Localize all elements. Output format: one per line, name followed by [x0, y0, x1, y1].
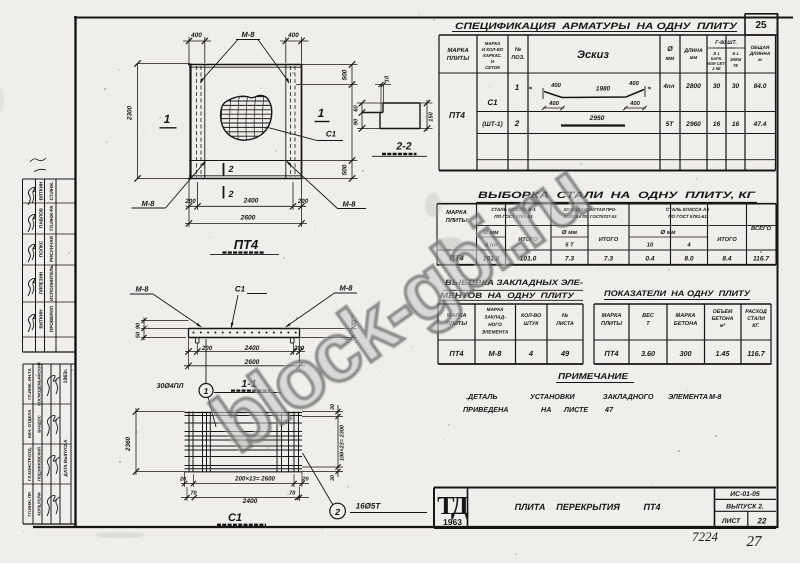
svg-text:4: 4	[528, 349, 534, 358]
svg-text:НА: НА	[541, 405, 551, 414]
svg-text:мм: мм	[690, 55, 698, 61]
svg-text:20: 20	[179, 477, 187, 483]
svg-text:2360: 2360	[125, 436, 132, 452]
svg-text:4: 4	[686, 243, 691, 249]
svg-text:ОБЪЕМ: ОБЪЕМ	[713, 309, 733, 315]
svg-text:2400: 2400	[242, 498, 258, 505]
svg-text:2: 2	[227, 189, 233, 199]
svg-text:ПОЗ.: ПОЗ.	[511, 55, 525, 61]
svg-text:ПЕРЕКРЫТИЯ: ПЕРЕКРЫТИЯ	[556, 502, 620, 512]
svg-text:8.0: 8.0	[684, 256, 693, 263]
svg-text:ТЕ: ТЕ	[733, 63, 738, 68]
svg-text:2960: 2960	[685, 121, 701, 128]
svg-text:ИТОГО: ИТОГО	[717, 237, 737, 243]
svg-text:ПТ4: ПТ4	[234, 237, 259, 252]
svg-text:СТАЛИ: СТАЛИ	[747, 316, 765, 322]
svg-text:22: 22	[757, 517, 767, 526]
svg-text:ПТ4: ПТ4	[449, 349, 464, 358]
svg-text:7.3: 7.3	[565, 256, 574, 263]
svg-text:1980: 1980	[596, 86, 611, 93]
svg-text:ШТУК: ШТУК	[524, 321, 540, 327]
svg-text:8: 8	[528, 86, 533, 89]
svg-text:7.3: 7.3	[604, 256, 613, 263]
svg-text:2800: 2800	[685, 83, 701, 90]
svg-text:№: №	[515, 47, 522, 53]
svg-text:90: 90	[353, 118, 360, 125]
svg-text:МАРКА: МАРКА	[676, 313, 696, 319]
svg-text:2: 2	[514, 119, 520, 128]
svg-text:ГЛ.КОНСТР.ОТД.: ГЛ.КОНСТР.ОТД.	[27, 447, 32, 481]
svg-text:ГЛ.ИНЖ-РА: ГЛ.ИНЖ-РА	[49, 205, 54, 231]
svg-text:30: 30	[713, 83, 721, 90]
svg-text:м: м	[758, 58, 762, 63]
svg-text:400: 400	[548, 100, 559, 107]
svg-text:ДАТА ВЫПУСКА: ДАТА ВЫПУСКА	[63, 439, 68, 477]
svg-text:2950: 2950	[589, 115, 605, 122]
svg-text:ДЛИНА: ДЛИНА	[683, 48, 703, 54]
svg-text:116.7: 116.7	[747, 349, 765, 358]
svg-text:ПТ4: ПТ4	[604, 349, 619, 358]
svg-text:СТАЛЬ КЛАССА А-I: СТАЛЬ КЛАССА А-I	[666, 207, 710, 212]
svg-text:500: 500	[342, 164, 349, 175]
svg-text:СПЕЦИФИКАЦИЯ АРМАТУРЫ НА ОДН: СПЕЦИФИКАЦИЯ АРМАТУРЫ НА ОДНУ ПЛИТУ	[455, 21, 738, 31]
svg-text:ЭЛЕМ: ЭЛЕМ	[730, 57, 742, 62]
svg-text:ДЛИННА: ДЛИННА	[749, 51, 771, 57]
svg-text:Т: Т	[646, 321, 650, 327]
svg-text:Ø: Ø	[667, 45, 673, 53]
svg-text:Эскиз: Эскиз	[577, 49, 609, 61]
svg-text:мм: мм	[666, 56, 675, 62]
svg-text:ПТ4: ПТ4	[644, 502, 661, 512]
svg-text:400: 400	[629, 100, 640, 107]
svg-text:ЗАКЛАДНОГО: ЗАКЛАДНОГО	[603, 392, 654, 401]
svg-text:РАСХОД: РАСХОД	[745, 309, 767, 315]
svg-text:М-8: М-8	[242, 30, 256, 39]
svg-text:М-8: М-8	[136, 285, 150, 294]
svg-text:ЛИСТЕ: ЛИСТЕ	[563, 405, 588, 414]
svg-text:КАРКАС.: КАРКАС.	[483, 53, 502, 58]
svg-text:300: 300	[680, 349, 692, 358]
svg-text:400: 400	[628, 80, 639, 87]
svg-text:С1: С1	[228, 512, 242, 524]
svg-text:2300: 2300	[127, 105, 134, 121]
svg-text:Ø мм: Ø мм	[660, 229, 676, 236]
svg-text:200: 200	[201, 345, 213, 352]
svg-text:30: 30	[732, 83, 740, 90]
svg-text:100×23= 2300: 100×23= 2300	[340, 424, 346, 461]
svg-text:7224: 7224	[692, 529, 719, 544]
svg-text:2400: 2400	[243, 198, 259, 205]
svg-text:КОЛ-ВО: КОЛ-ВО	[521, 313, 541, 319]
svg-text:16: 16	[732, 121, 740, 128]
svg-text:БЕТОНА: БЕТОНА	[712, 316, 734, 322]
svg-text:М-8: М-8	[343, 199, 357, 208]
svg-text:60: 60	[353, 105, 360, 112]
svg-text:ПЛИТЫ: ПЛИТЫ	[447, 55, 470, 62]
svg-text:500: 500	[342, 69, 349, 80]
svg-text:16: 16	[713, 121, 721, 128]
svg-text:400: 400	[550, 82, 561, 89]
svg-text:ВАНДОС: ВАНДОС	[37, 415, 42, 432]
svg-text:И: И	[491, 59, 495, 64]
svg-text:ПОКАЗАТЕЛИ НА ОДНУ ПЛИТУ: ПОКАЗАТЕЛИ НА ОДНУ ПЛИТУ	[604, 289, 751, 298]
svg-text:20: 20	[301, 477, 309, 483]
svg-text:1: 1	[164, 112, 171, 126]
svg-text:И КОЛ-ВО: И КОЛ-ВО	[482, 47, 504, 52]
svg-text:РИСУНЧАЯ: РИСУНЧАЯ	[49, 236, 54, 262]
svg-text:block-gbi.ru: block-gbi.ru	[196, 147, 603, 470]
svg-text:1.45: 1.45	[716, 349, 731, 358]
svg-text:В 1: В 1	[732, 51, 739, 56]
svg-text:БЕТОНА: БЕТОНА	[674, 321, 697, 327]
svg-text:ПРИМЕЧАНИЕ: ПРИМЕЧАНИЕ	[558, 371, 628, 381]
svg-text:25: 25	[755, 20, 767, 31]
svg-text:№: №	[562, 313, 569, 319]
svg-text:10: 10	[647, 242, 654, 249]
svg-text:Г-80 ШТ.: Г-80 ШТ.	[715, 40, 737, 46]
svg-text:МАРКА: МАРКА	[602, 313, 622, 319]
svg-text:ПРИВЕДЕНА: ПРИВЕДЕНА	[463, 405, 508, 414]
svg-text:МАРКА: МАРКА	[486, 307, 504, 313]
svg-text:1963г.: 1963г.	[63, 368, 69, 383]
svg-text:ИТОГО: ИТОГО	[599, 237, 619, 243]
svg-text:СЕТОК: СЕТОК	[485, 65, 500, 70]
svg-text:47.4: 47.4	[753, 121, 767, 128]
svg-text:ПОДЗИНОВСКИЙ: ПОДЗИНОВСКИЙ	[37, 447, 42, 481]
svg-text:400: 400	[190, 32, 202, 39]
svg-text:ВСЕГО: ВСЕГО	[751, 225, 772, 232]
svg-text:ПЛИТЫ: ПЛИТЫ	[601, 321, 622, 327]
svg-text:84.0: 84.0	[754, 83, 767, 90]
svg-text:30: 30	[330, 475, 336, 481]
svg-text:5Т: 5Т	[666, 121, 675, 128]
svg-text:МАРКА: МАРКА	[485, 41, 501, 46]
svg-text:1: 1	[318, 106, 325, 120]
svg-text:ВЕС: ВЕС	[642, 313, 655, 319]
svg-text:49: 49	[560, 349, 570, 358]
svg-text:ПТ4: ПТ4	[449, 110, 465, 120]
svg-text:НАЧ. ОТДЕЛА: НАЧ. ОТДЕЛА	[27, 410, 32, 438]
svg-text:ГЛ.ИНЖ. ПР.: ГЛ.ИНЖ. ПР.	[27, 492, 32, 517]
svg-text:ВЯТКИН: ВЯТКИН	[39, 181, 44, 200]
svg-text:С1: С1	[487, 98, 498, 107]
svg-text:ЛЯПЕЗИН: ЛЯПЕЗИН	[39, 271, 44, 294]
svg-text:50: 50	[136, 331, 142, 338]
svg-text:70: 70	[190, 491, 197, 497]
svg-text:НОГО: НОГО	[488, 322, 502, 328]
svg-text:8: 8	[647, 86, 652, 89]
svg-text:150: 150	[428, 111, 435, 121]
svg-text:МАРКА: МАРКА	[447, 47, 468, 54]
svg-text:ЛИСТ: ЛИСТ	[721, 518, 741, 525]
svg-text:ПРОВЕРИЛ: ПРОВЕРИЛ	[49, 306, 54, 332]
svg-text:2 КЕ: 2 КЕ	[711, 66, 721, 71]
svg-text:4пл: 4пл	[662, 83, 674, 90]
svg-text:ВИТКИН: ВИТКИН	[39, 309, 44, 329]
svg-text:ИСПОЛНИТЕЛЬ: ИСПОЛНИТЕЛЬ	[49, 264, 54, 300]
svg-text:ГЛ.ИНЖ. ИН-ТА: ГЛ.ИНЖ. ИН-ТА	[27, 368, 32, 399]
svg-text:1: 1	[515, 83, 520, 92]
svg-text:3.60: 3.60	[641, 349, 655, 358]
svg-text:ЭЛЕМЕНТА: ЭЛЕМЕНТА	[668, 392, 708, 401]
svg-text:КГ.: КГ.	[752, 323, 760, 329]
svg-text:М-8: М-8	[709, 392, 721, 401]
svg-text:С1: С1	[326, 130, 337, 139]
svg-text:КОСМОДЕМЬЯНСКИЙ: КОСМОДЕМЬЯНСКИЙ	[37, 362, 42, 405]
svg-text:116.7: 116.7	[753, 256, 769, 263]
svg-text:ИС-01-05: ИС-01-05	[730, 491, 760, 498]
svg-text:ЛИСТА: ЛИСТА	[555, 321, 574, 327]
svg-text:200: 200	[297, 198, 309, 205]
svg-text:ОБЩАЯ: ОБЩАЯ	[751, 45, 770, 51]
svg-text:ТД: ТД	[437, 491, 469, 520]
svg-text:ПО ГОСТ 5781-61: ПО ГОСТ 5781-61	[668, 214, 707, 219]
svg-text:ПОЛКС: ПОЛКС	[39, 240, 44, 257]
svg-text:8.4: 8.4	[722, 256, 731, 263]
svg-text:30Ø4ПЛ: 30Ø4ПЛ	[157, 382, 184, 390]
svg-text:ПАВЛОВ: ПАВЛОВ	[39, 207, 44, 228]
svg-text:С1: С1	[235, 285, 246, 294]
svg-text:10: 10	[384, 75, 391, 82]
svg-text:200: 200	[184, 198, 196, 205]
svg-text:ВЫПУСК 2.: ВЫПУСК 2.	[726, 504, 764, 511]
svg-text:м³: м³	[720, 323, 726, 329]
svg-text:90: 90	[136, 322, 142, 329]
svg-text:ЭЛЕМЕНТА: ЭЛЕМЕНТА	[482, 330, 509, 336]
svg-text:УСТАНОВКИ: УСТАНОВКИ	[530, 392, 575, 401]
svg-text:1963: 1963	[443, 517, 462, 527]
svg-text:16Ø5Т: 16Ø5Т	[356, 502, 382, 511]
svg-text:2-2: 2-2	[395, 141, 411, 153]
svg-text:27: 27	[747, 534, 764, 550]
svg-text:200×13= 2600: 200×13= 2600	[234, 476, 275, 483]
svg-text:М-8: М-8	[142, 199, 156, 208]
svg-text:ЗАКЛАД-: ЗАКЛАД-	[484, 315, 506, 321]
svg-text:СТ.ИНЖ.: СТ.ИНЖ.	[49, 182, 54, 201]
svg-text:2600: 2600	[240, 215, 256, 222]
svg-text:400: 400	[287, 32, 299, 39]
svg-text:70: 70	[289, 491, 296, 497]
svg-text:(ШТ-1): (ШТ-1)	[482, 121, 502, 128]
svg-text:КОПШТЕЙН: КОПШТЕЙН	[37, 492, 42, 515]
svg-text:М-8: М-8	[489, 349, 503, 358]
svg-text:ПЛИТА: ПЛИТА	[515, 502, 546, 512]
svg-text:2: 2	[227, 164, 233, 174]
svg-text:47: 47	[604, 405, 614, 414]
svg-text:.ДЕТАЛЬ: .ДЕТАЛЬ	[466, 392, 497, 401]
svg-text:0.4: 0.4	[645, 256, 654, 263]
